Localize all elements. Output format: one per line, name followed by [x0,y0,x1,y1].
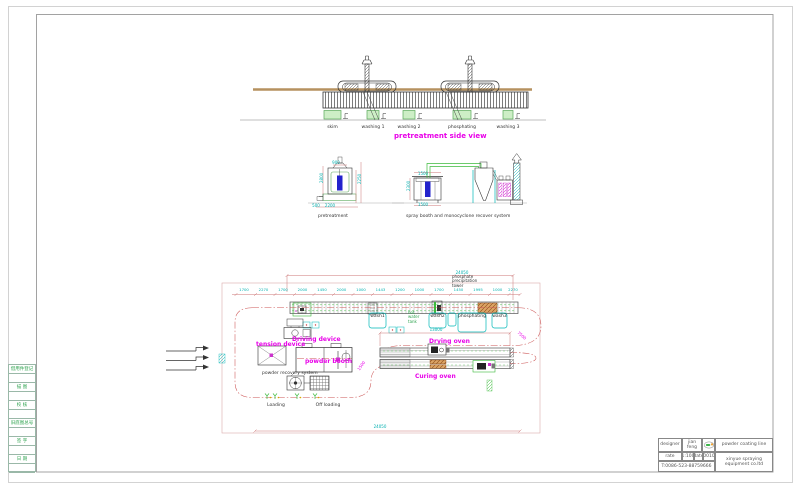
segment-dim: 1700 [434,288,444,292]
segment-dim: 1700 [278,288,288,292]
dim-label: 13000 [430,328,443,333]
sheet-border [9,7,793,483]
side-view-title: pretreatment side view [394,132,487,140]
curing-oven-label: Curing oven [415,374,456,381]
cad-linework [0,0,800,493]
segment-dim: 2000 [337,288,347,292]
company-name: xinyue spraying equipment co.ltd [715,452,773,472]
dim-label: 24050 [456,271,469,276]
loading-label: Loading [267,403,285,408]
plan-view-drawing [166,274,541,433]
dim-label: 500 [312,204,320,209]
spray-booth-system-drawing [392,154,527,206]
side-tank-label: phosphating [448,125,476,130]
exhaust-chimney [514,163,521,200]
revision-field-label: 校 核 [9,401,35,410]
revision-field-label: 旧底图总号 [9,419,35,428]
phone-number: T:0086-523-88759666 [658,461,715,472]
dim-label: 2250 [358,174,363,184]
side-tank-label: skim [327,125,338,130]
drying-oven-label: Drying oven [429,339,470,346]
revision-field-blank [9,464,35,473]
plan-tank-label: phosphating [458,314,486,319]
plan-tank-label: wash3 [492,314,507,319]
date-value: 200107 [703,452,715,461]
hot-water-note-line3: tank [408,320,417,325]
exhaust-stack-1 [338,56,396,92]
dim-label: 2300 [407,181,412,191]
up-arrow-icon [512,154,521,164]
pretreatment-tanks [324,111,513,120]
tension-device-drawing [258,346,286,365]
segment-dim: 1995 [473,288,483,292]
powder-booth-label: powder booth [305,359,352,366]
workpiece [337,176,343,191]
dim-label: 24050 [374,425,387,430]
revision-strip: 借用件登记描 图校 核旧底图总号签 字日 期 [8,364,36,472]
oven-exit [487,380,492,391]
designer-value: jian feng [682,438,702,452]
flow-arrow-icons [166,346,209,371]
side-tank-label: washing 2 [398,125,421,130]
spray-system-label: spray booth and monocyclone recover syst… [406,214,510,219]
side-tank-label: washing 3 [497,125,520,130]
pump-boxes [303,322,404,333]
plan-tank-label: wash1 [370,314,385,319]
designer-label: designer [658,438,682,452]
revision-field-blank [9,392,35,401]
revision-field-label: 借用件登记 [9,365,35,374]
logo-cell [702,438,715,452]
segment-dim: 1000 [493,288,503,292]
company-logo [703,439,715,451]
revision-field-blank [9,374,35,383]
pretreatment-side-view-drawing [240,56,546,120]
segment-dim: 1450 [454,288,464,292]
segment-dim: 1000 [415,288,425,292]
off-loading-label: Off loading [316,403,341,408]
revision-field-blank [9,446,35,455]
plan-tank-label: wash2 [430,314,445,319]
loading-marks [265,394,319,400]
rate-label: rate [658,452,682,461]
segment-dim: 2270 [259,288,269,292]
segment-dim: 1443 [376,288,386,292]
revision-field-blank [9,428,35,437]
product-name: powder coating line [715,438,773,452]
drawing-sheet: pretreatment side view pretreatment spra… [0,0,800,493]
pretreatment-label: pretreatment [318,214,348,219]
drying-burner [428,344,450,355]
tension-device-label: tension device [256,342,305,349]
powder-recovery-label: powder recovery system [262,371,318,376]
revision-field-label: 签 字 [9,437,35,446]
exhaust-stack-2 [441,56,499,92]
side-tank-label: washing 1 [362,125,385,130]
dim-label: 900 [332,161,340,166]
date-label: date [694,452,703,461]
revision-field-blank [9,410,35,419]
dim-label: 1500 [418,172,428,177]
segment-dim: 2000 [298,288,308,292]
dim-label: 2200 [325,204,335,209]
segment-dim: 1450 [317,288,327,292]
cyclone [475,168,493,201]
segment-dim: 1700 [239,288,249,292]
segment-dim: 1200 [395,288,405,292]
workpiece [425,182,431,198]
revision-field-label: 描 图 [9,383,35,392]
dim-label: 1500 [418,203,428,208]
segment-dim: 1000 [356,288,366,292]
segment-dim: 2270 [508,288,518,292]
revision-field-label: 日 期 [9,455,35,464]
rate-value: 1:100 [682,452,694,461]
curing-burner [473,361,495,373]
company-line2: equipment co.ltd [725,462,763,467]
dim-label: 2800 [320,173,325,183]
